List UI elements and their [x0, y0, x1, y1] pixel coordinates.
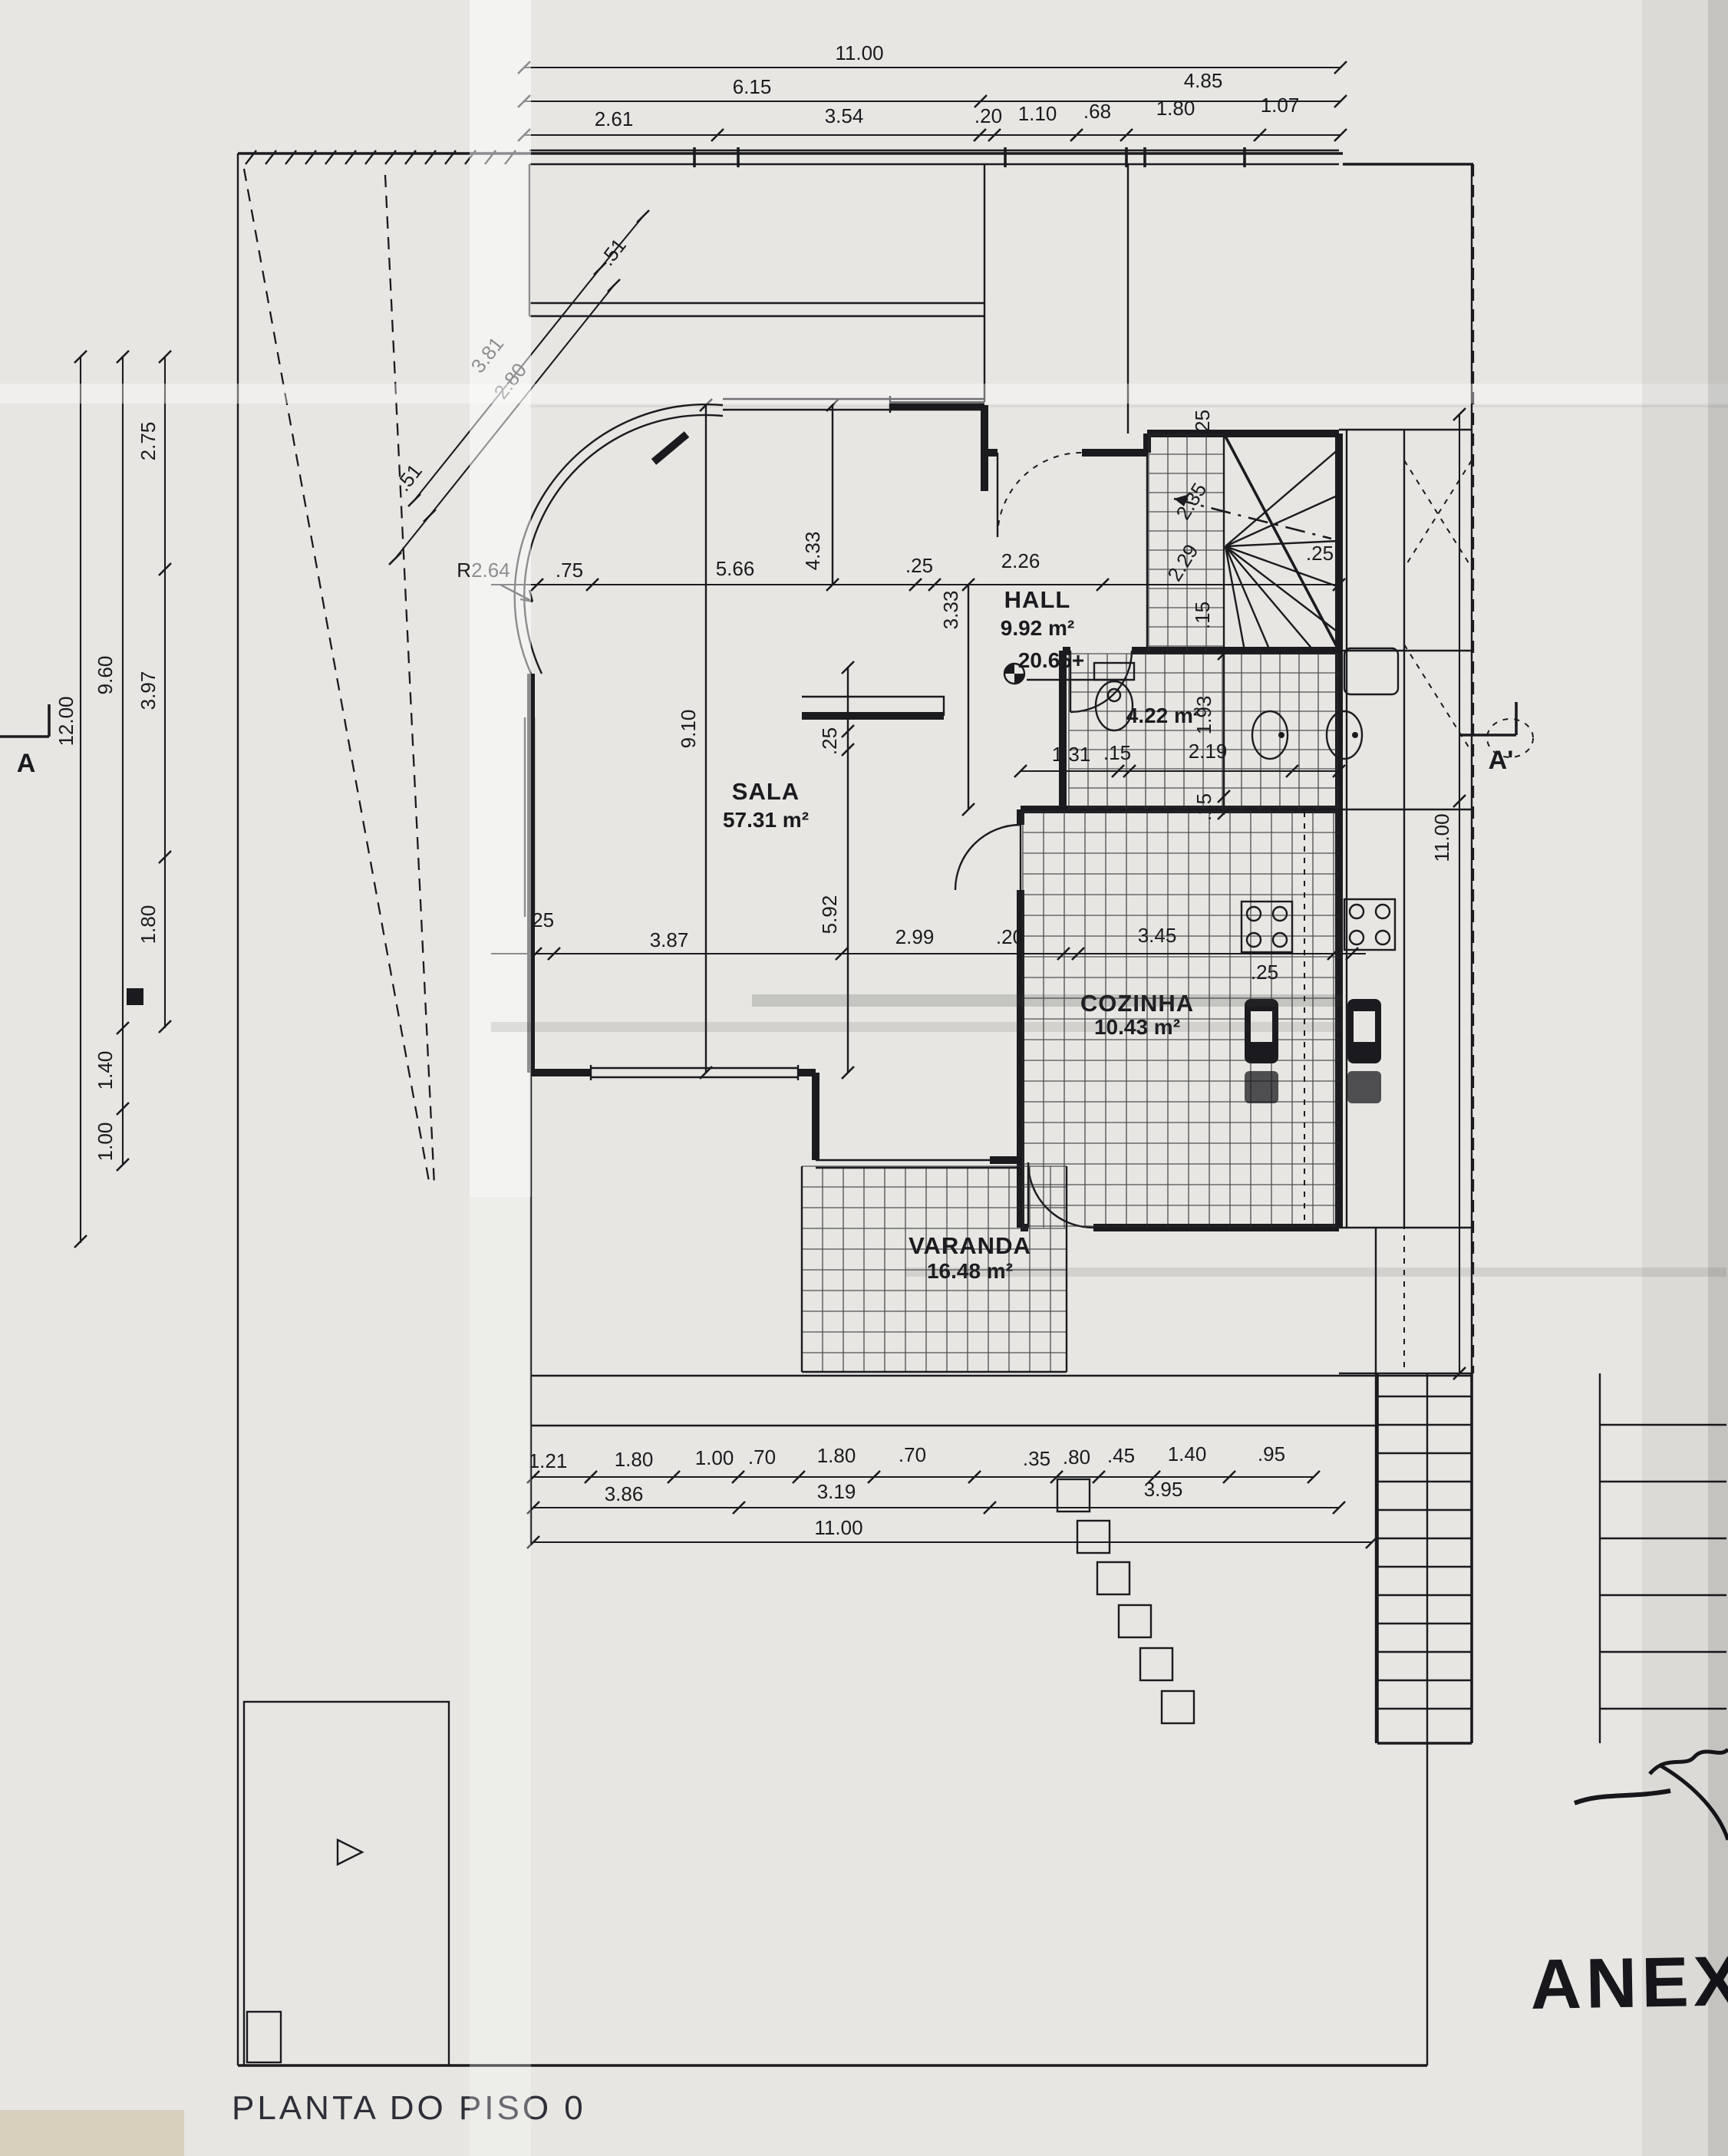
upper-annex-block [529, 147, 1472, 1373]
scan-streak [491, 1022, 1343, 1032]
dimension-lines [81, 68, 1459, 1542]
dimension-ticks [74, 61, 1466, 1548]
curved-bay-window [515, 404, 723, 674]
kitchen-varanda-door [1028, 1162, 1093, 1228]
entry-door-arc [998, 453, 1082, 537]
property-boundary [238, 150, 1473, 2065]
dim-label: 11.00 [835, 41, 883, 64]
page-title: PLANTA DO PISO 0 [232, 2089, 586, 2127]
varanda-terrace [531, 1073, 1472, 1743]
dim-label: .70 [748, 1446, 776, 1469]
dim-label: 5.66 [716, 557, 755, 580]
dim-label: 1.21 [529, 1449, 568, 1472]
scan-streak [905, 1268, 1726, 1277]
dim-label: .25 [1306, 542, 1334, 565]
room-area-sala: 57.31 m² [723, 808, 809, 832]
room-labels: HALL 9.92 m² SALA 57.31 m² COZINHA 10.43… [17, 559, 1514, 1283]
dim-label: 2.19 [1189, 740, 1228, 763]
room-name-sala: SALA [732, 778, 800, 805]
kitchen [1023, 812, 1339, 1228]
dim-label: .51 [595, 234, 631, 270]
room-area-hall: 9.92 m² [1001, 616, 1075, 640]
projection-dashed-lines [244, 169, 434, 1185]
survey-mark [127, 988, 143, 1005]
scan-streak [752, 994, 1343, 1007]
dim-label: 1.40 [94, 1051, 117, 1090]
dim-label: 1.31 [1052, 743, 1091, 766]
dim-label: 1.10 [1018, 102, 1057, 125]
dim-label: .15 [1192, 793, 1215, 821]
dim-label: 11.00 [1430, 813, 1453, 862]
dim-label: .68 [1083, 100, 1111, 123]
section-marker-left [0, 704, 49, 737]
dim-label: .80 [1063, 1446, 1090, 1469]
dim-label: 3.86 [605, 1482, 644, 1505]
dim-label: 1.80 [1156, 97, 1195, 120]
dim-label: .45 [1107, 1444, 1135, 1467]
room-name-hall: HALL [1004, 586, 1071, 613]
dim-label: .20 [996, 925, 1024, 948]
dim-label: 1.00 [94, 1123, 117, 1162]
dim-label: .25 [1251, 961, 1278, 984]
sala-bottom-window [591, 1065, 798, 1080]
dim-label: 3.19 [817, 1480, 856, 1503]
dim-label: 2.99 [895, 925, 935, 948]
dim-label: 2.29 [1162, 540, 1202, 585]
dim-label: .75 [556, 559, 583, 582]
dim-label: 2.61 [595, 107, 634, 130]
dim-label: .51 [391, 460, 427, 496]
dim-label: 9.60 [94, 656, 117, 695]
section-label-a: A [17, 749, 36, 778]
section-label-a-prime: A' [1489, 746, 1514, 775]
dim-label: 1.80 [137, 905, 160, 944]
dim-label: 2.35 [1171, 479, 1211, 524]
dim-label: 3.54 [825, 104, 864, 127]
dim-label: 1.00 [695, 1446, 734, 1469]
dim-label: 3.45 [1138, 924, 1177, 947]
dim-label: .70 [899, 1443, 926, 1466]
scanned-floorplan-page: 11.00 6.15 4.85 2.61 3.54 .20 1.10 .68 1… [0, 0, 1728, 2156]
dim-label: 1.80 [615, 1448, 654, 1471]
garage-plot [244, 1702, 449, 2065]
dim-label: .35 [1023, 1447, 1050, 1470]
floorplan-canvas: 11.00 6.15 4.85 2.61 3.54 .20 1.10 .68 1… [0, 0, 1728, 2156]
room-area-wc: 4.22 m² [1126, 704, 1201, 727]
dim-label: .25 [905, 554, 933, 577]
dim-label: 3.95 [1144, 1478, 1183, 1501]
interior-dim-lines [706, 405, 1224, 1073]
dim-label: .15 [1103, 741, 1131, 764]
dim-label: 2.75 [137, 422, 160, 461]
dim-label: 1.80 [817, 1444, 856, 1467]
dim-label: 3.97 [137, 671, 160, 710]
dim-label: 5.92 [818, 895, 841, 935]
dim-label: 3.87 [650, 928, 689, 951]
paper-fold-artifacts [0, 0, 1728, 2156]
level-value: 20.65+ [1018, 648, 1084, 672]
hall-kitchen-door [955, 825, 1021, 890]
dim-label: .25 [818, 727, 841, 755]
bay-door-frame [654, 434, 687, 462]
room-name-varanda: VARANDA [909, 1232, 1031, 1259]
dim-label: 4.33 [801, 532, 824, 571]
dim-label: 1.40 [1168, 1442, 1207, 1465]
dim-label: 2.26 [1001, 549, 1040, 572]
gate-arrow-icon [338, 1840, 362, 1864]
dim-label: .20 [974, 104, 1002, 127]
dim-label: 12.00 [54, 696, 77, 746]
dim-label: .95 [1258, 1442, 1285, 1465]
dim-label: 11.00 [814, 1516, 862, 1539]
roof-dashed [1404, 430, 1472, 1373]
dim-label: .15 [1191, 602, 1214, 629]
dim-label: 6.15 [733, 75, 772, 98]
dim-label: 9.10 [677, 710, 700, 749]
dim-label: 4.85 [1184, 69, 1223, 92]
stepping-stones [1057, 1479, 1194, 1723]
dim-label: .25 [1191, 410, 1214, 437]
dim-label: 3.33 [939, 591, 962, 630]
dim-label: 1.07 [1261, 94, 1300, 117]
kitchen-tiles [1023, 812, 1339, 1228]
